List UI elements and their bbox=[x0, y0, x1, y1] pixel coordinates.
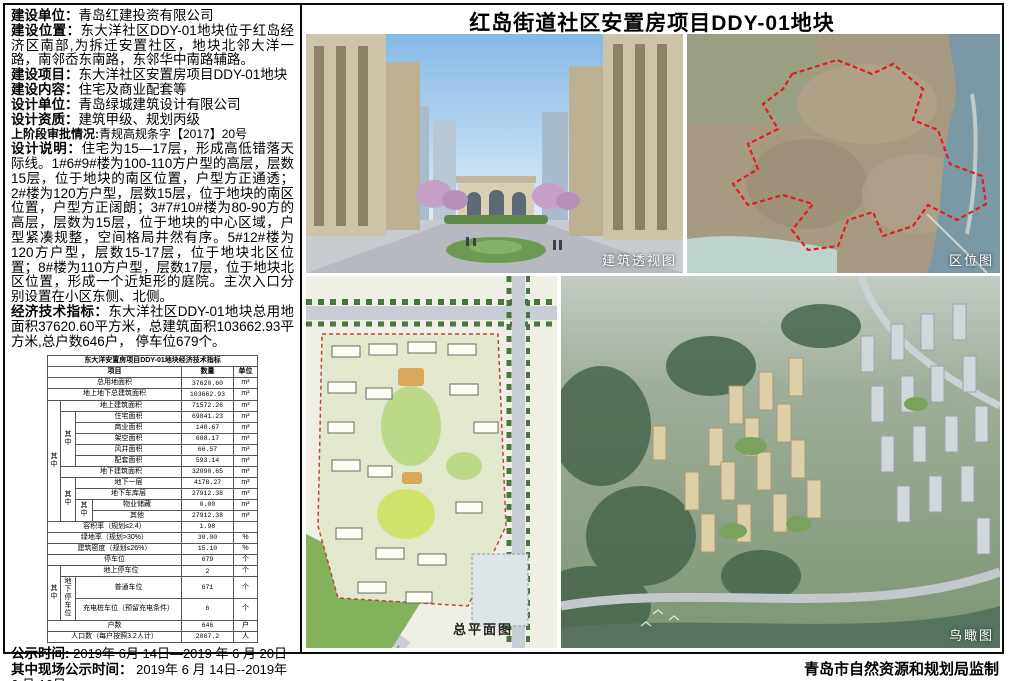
location-caption: 区位图 bbox=[949, 250, 994, 269]
field-location: 建设位置：东大洋社区DDY-01地块位于红岛经济区南部,为拆迁安置社区，地块北邻… bbox=[11, 24, 294, 68]
table-row: 地下车库层27912.38m² bbox=[47, 488, 257, 499]
field-design-description: 设计说明：住宅为15—17层，形成高低错落天际线。1#6#9#楼为100-110… bbox=[11, 142, 294, 305]
image-panel: 红岛街道社区安置房项目DDY-01地块 bbox=[302, 5, 1002, 652]
site-plan-image: 总平面图 bbox=[306, 276, 557, 648]
field-design-qualification: 设计资质：建筑甲级、规划丙级 bbox=[11, 113, 294, 128]
table-row: 绿地率（规划>30%）30.00% bbox=[47, 533, 257, 544]
table-row: 其中住宅面积69841.23m² bbox=[47, 411, 257, 422]
location-map-graphic bbox=[687, 34, 1000, 273]
field-economic-indicators: 经济技术指标：东大洋社区DDY-01地块总用地面积37620.60平方米，总建筑… bbox=[11, 305, 294, 349]
table-row: 商业面积140.67m² bbox=[47, 422, 257, 433]
poster-sheet: 建设单位：青岛红建投资有限公司 建设位置：东大洋社区DDY-01地块位于红岛经济… bbox=[3, 3, 1004, 654]
table-row: 户数646户 bbox=[47, 620, 257, 631]
field-content: 建设内容：住宅及商业配套等 bbox=[11, 83, 294, 98]
table-row: 地下建筑面积32090.65m² bbox=[47, 466, 257, 477]
table-row: 容积率（规划≤2.4）1.98 bbox=[47, 522, 257, 533]
table-row: 其中地下一层4178.27m² bbox=[47, 477, 257, 488]
economic-indicator-table: 东大洋安置房项目DDY-01地块经济技术指标 项目 数量 单位 总用地面积376… bbox=[47, 355, 258, 642]
info-panel: 建设单位：青岛红建投资有限公司 建设位置：东大洋社区DDY-01地块位于红岛经济… bbox=[5, 5, 302, 652]
aerial-view-graphic bbox=[561, 276, 1000, 648]
location-map-image: 区位图 bbox=[687, 34, 1000, 273]
site-plan-graphic bbox=[306, 276, 557, 648]
site-plan-caption: 总平面图 bbox=[453, 619, 513, 638]
table-row: 建筑密度（规划≤26%）15.10% bbox=[47, 544, 257, 555]
col-header-unit: 单位 bbox=[233, 367, 257, 378]
table-row: 其中地上建筑面积71572.26m² bbox=[47, 400, 257, 411]
table-row: 总用地面积37620.60m² bbox=[47, 378, 257, 389]
field-construction-unit: 建设单位：青岛红建投资有限公司 bbox=[11, 9, 294, 24]
table-row: 其中地上停车位2个 bbox=[47, 566, 257, 577]
perspective-rendering-image: 建筑透视图 bbox=[306, 34, 683, 273]
field-prior-approval: 上阶段审批情况:青规高规条字【2017】20号 bbox=[11, 127, 294, 142]
notice-poster: 建设单位：青岛红建投资有限公司 建设位置：东大洋社区DDY-01地块位于红岛经济… bbox=[0, 0, 1009, 681]
onsite-publicity-period: 其中现场公示时间： 2019年 6 月 14日--2019年 6 月 16日 bbox=[11, 663, 294, 681]
col-header-item: 项目 bbox=[47, 367, 181, 378]
page-title: 红岛街道社区安置房项目DDY-01地块 bbox=[302, 7, 1002, 37]
table-row: 架空面积608.17m² bbox=[47, 433, 257, 444]
aerial-caption: 鸟瞰图 bbox=[949, 625, 994, 644]
issuing-authority: 青岛市自然资源和规划局监制 bbox=[804, 658, 999, 679]
table-row: 风井面积66.57m² bbox=[47, 444, 257, 455]
table-row: 地下停车位普通车位671个 bbox=[47, 577, 257, 599]
table-row: 地上地下总建筑面积103662.93m² bbox=[47, 389, 257, 400]
table-row: 停车位679个 bbox=[47, 555, 257, 566]
col-header-qty: 数量 bbox=[181, 367, 233, 378]
table-row: 人口数（每户按照3.2人计）2067.2人 bbox=[47, 631, 257, 642]
table-row: 配套面积593.14m² bbox=[47, 455, 257, 466]
perspective-rendering-graphic bbox=[306, 34, 683, 273]
table-row: 充电桩车位（预留充电条件）6个 bbox=[47, 598, 257, 620]
table-row: 其中物业储藏0.00m² bbox=[47, 499, 257, 510]
field-design-unit: 设计单位：青岛绿城建筑设计有限公司 bbox=[11, 98, 294, 113]
perspective-caption: 建筑透视图 bbox=[602, 250, 677, 269]
field-project: 建设项目：东大洋社区安置房项目DDY-01地块 bbox=[11, 68, 294, 83]
table-title: 东大洋安置房项目DDY-01地块经济技术指标 bbox=[47, 356, 257, 367]
publicity-period: 公示时间: 2019年 6月 14日—2019 年 6 月 20日 bbox=[11, 647, 294, 662]
aerial-view-image: 鸟瞰图 bbox=[561, 276, 1000, 648]
